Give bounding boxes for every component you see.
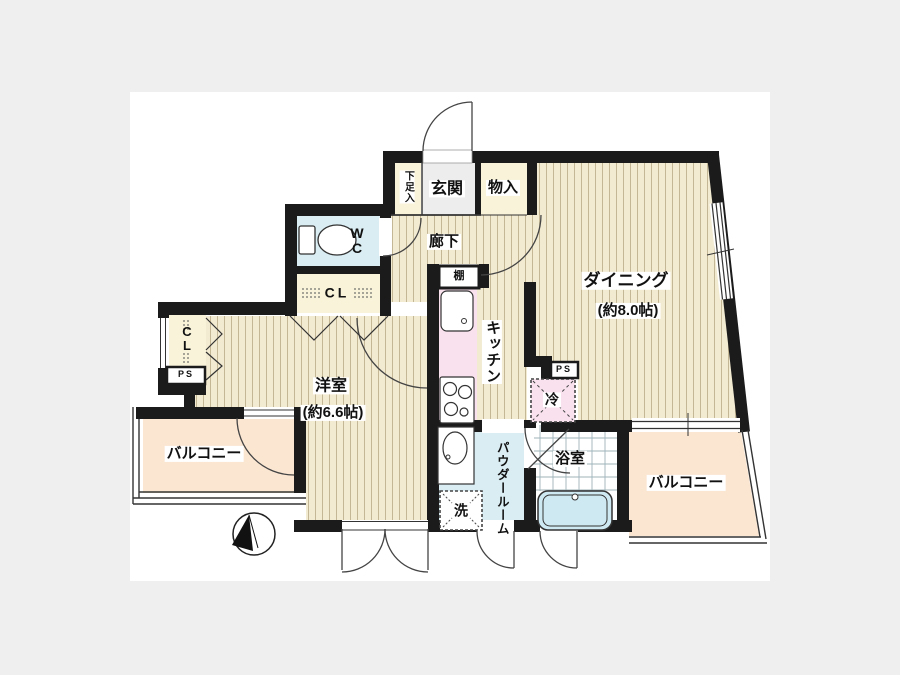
shoe-cabinet-label: 下足入 <box>400 171 415 204</box>
storage-label: 物入 <box>486 180 520 196</box>
toilet-label: W C <box>350 226 363 256</box>
pipe-space-right-label: PS <box>556 365 572 375</box>
walls <box>136 151 719 532</box>
balcony-left-label: バルコニー <box>165 446 244 462</box>
balcony-right-label: バルコニー <box>647 475 726 491</box>
stove-icon <box>440 377 474 423</box>
compass-icon <box>232 513 275 555</box>
powder-room-label: パウダールーム <box>494 441 508 536</box>
diagonal-window <box>707 203 734 300</box>
powder-opening <box>482 419 524 433</box>
balcony-left-door-opening <box>244 407 294 419</box>
dining-label: ダイニング <box>582 272 671 290</box>
plan-linework <box>0 0 900 675</box>
shelf-label: 棚 <box>452 271 467 283</box>
bifold-door-icons <box>206 316 388 380</box>
bathroom-label: 浴室 <box>553 451 587 467</box>
bedroom-closet-label: C L <box>182 325 191 353</box>
kitchen-label: キッチン <box>482 320 502 384</box>
pipe-space-left-label: PS <box>178 370 194 380</box>
floor-plan-canvas: 下足入 玄関 物入 廊下 W C CL 棚 C L PS キッチン PS 冷 ダ… <box>0 0 900 675</box>
hallway-label: 廊下 <box>427 234 461 250</box>
hall-closet-label: CL <box>325 285 350 300</box>
kitchen-sink-icon <box>441 291 473 331</box>
dining-balcony-window <box>632 413 740 436</box>
washer-label: 洗 <box>454 503 468 518</box>
pipe-space-boxes <box>167 362 578 384</box>
refrigerator-label: 冷 <box>543 392 561 407</box>
bedroom-label: 洋室 <box>313 377 349 394</box>
toilet-icon <box>299 225 356 255</box>
washbasin-icon <box>438 427 474 484</box>
closet-wall-window <box>158 318 169 368</box>
bedroom-size-label: (約6.6帖) <box>301 405 366 421</box>
entrance-label: 玄関 <box>429 180 465 197</box>
dining-size-label: (約8.0帖) <box>596 303 661 319</box>
bathtub-icon <box>538 491 612 530</box>
